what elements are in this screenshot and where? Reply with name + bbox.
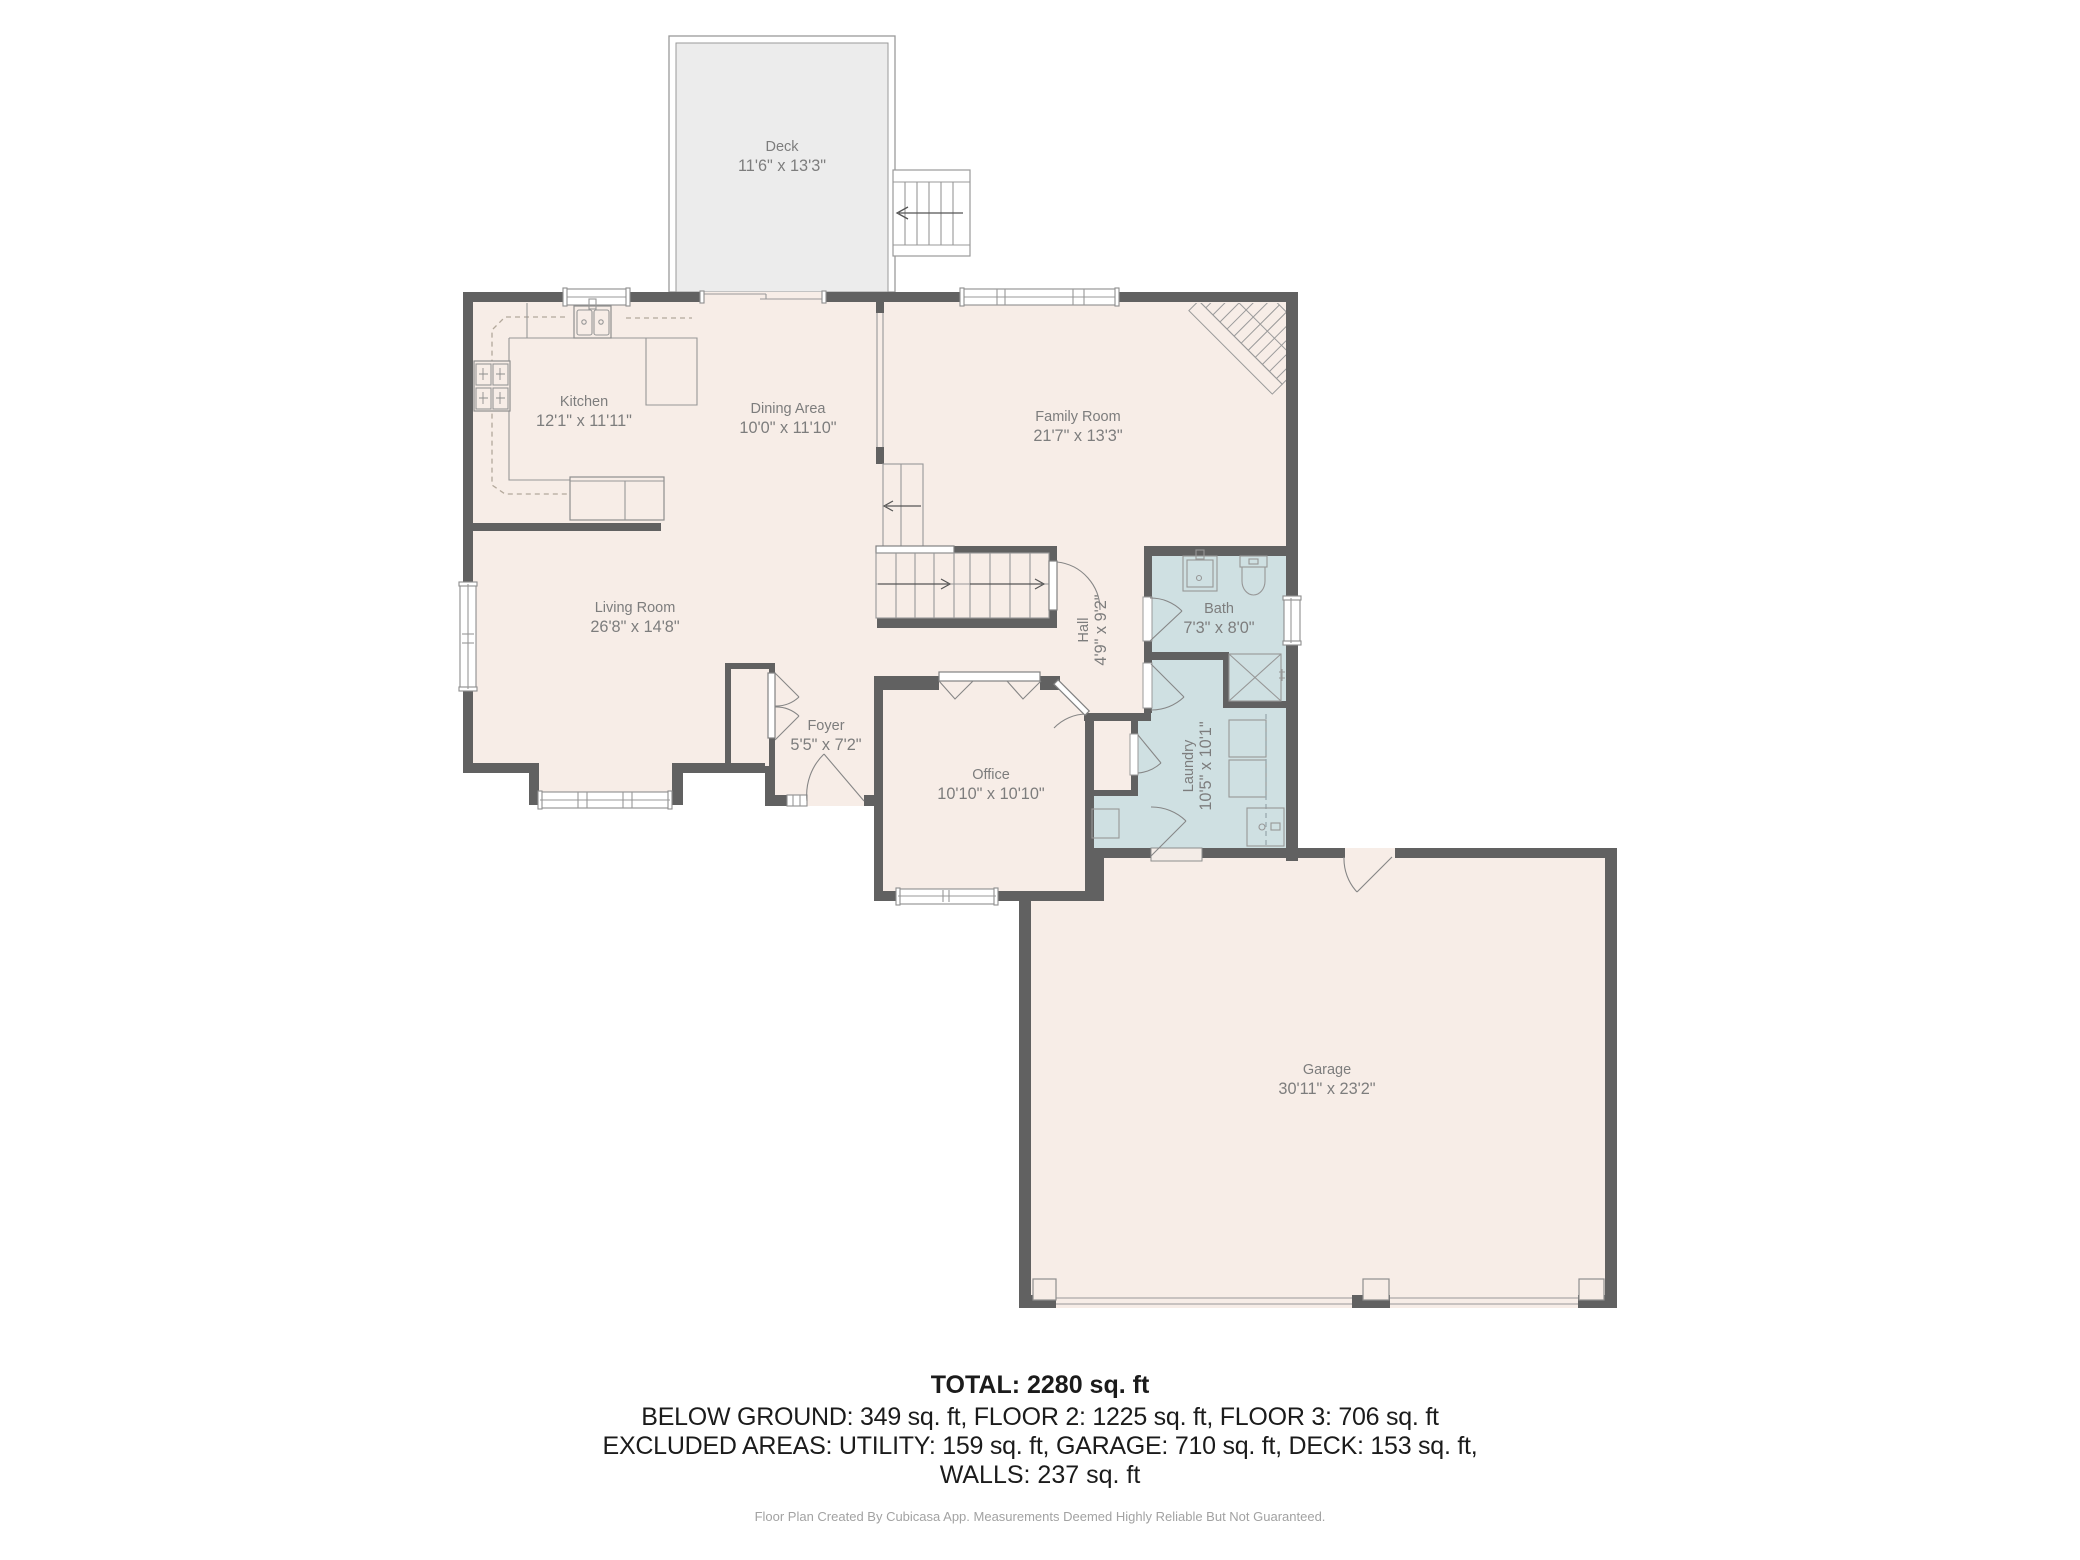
svg-text:Family Room: Family Room xyxy=(1035,409,1120,425)
svg-text:Deck: Deck xyxy=(765,139,799,155)
svg-text:21'7" x 13'3": 21'7" x 13'3" xyxy=(1033,427,1123,445)
svg-text:12'1" x 11'11": 12'1" x 11'11" xyxy=(536,412,632,430)
svg-text:7'3" x 8'0": 7'3" x 8'0" xyxy=(1183,619,1254,637)
svg-text:Kitchen: Kitchen xyxy=(560,394,608,410)
svg-text:Office: Office xyxy=(972,767,1010,783)
svg-text:Floor Plan Created By Cubicasa: Floor Plan Created By Cubicasa App. Meas… xyxy=(755,1509,1326,1524)
svg-text:5'5" x 7'2": 5'5" x 7'2" xyxy=(790,736,861,754)
svg-text:Foyer: Foyer xyxy=(807,718,844,734)
svg-text:BELOW GROUND: 349 sq. ft, FLOO: BELOW GROUND: 349 sq. ft, FLOOR 2: 1225 … xyxy=(641,1403,1439,1431)
svg-text:Laundry: Laundry xyxy=(1181,739,1197,792)
svg-text:Dining Area: Dining Area xyxy=(751,401,827,417)
svg-text:Bath: Bath xyxy=(1204,601,1234,617)
svg-text:10'0" x 11'10": 10'0" x 11'10" xyxy=(739,419,836,437)
svg-text:Garage: Garage xyxy=(1303,1062,1351,1078)
svg-text:10'5" x 10'1": 10'5" x 10'1" xyxy=(1197,721,1215,811)
svg-text:11'6" x 13'3": 11'6" x 13'3" xyxy=(738,157,826,175)
svg-text:26'8" x 14'8": 26'8" x 14'8" xyxy=(590,618,680,636)
svg-text:EXCLUDED AREAS: UTILITY: 159 s: EXCLUDED AREAS: UTILITY: 159 sq. ft, GAR… xyxy=(603,1432,1478,1460)
svg-text:10'10" x 10'10": 10'10" x 10'10" xyxy=(937,785,1045,803)
svg-text:Living Room: Living Room xyxy=(595,600,676,616)
svg-text:4'9" x 9'2": 4'9" x 9'2" xyxy=(1092,594,1110,665)
svg-text:Hall: Hall xyxy=(1076,618,1092,643)
svg-text:30'11" x 23'2": 30'11" x 23'2" xyxy=(1278,1080,1375,1098)
svg-text:TOTAL: 2280 sq. ft: TOTAL: 2280 sq. ft xyxy=(931,1371,1150,1399)
svg-text:WALLS: 237 sq. ft: WALLS: 237 sq. ft xyxy=(940,1461,1141,1489)
